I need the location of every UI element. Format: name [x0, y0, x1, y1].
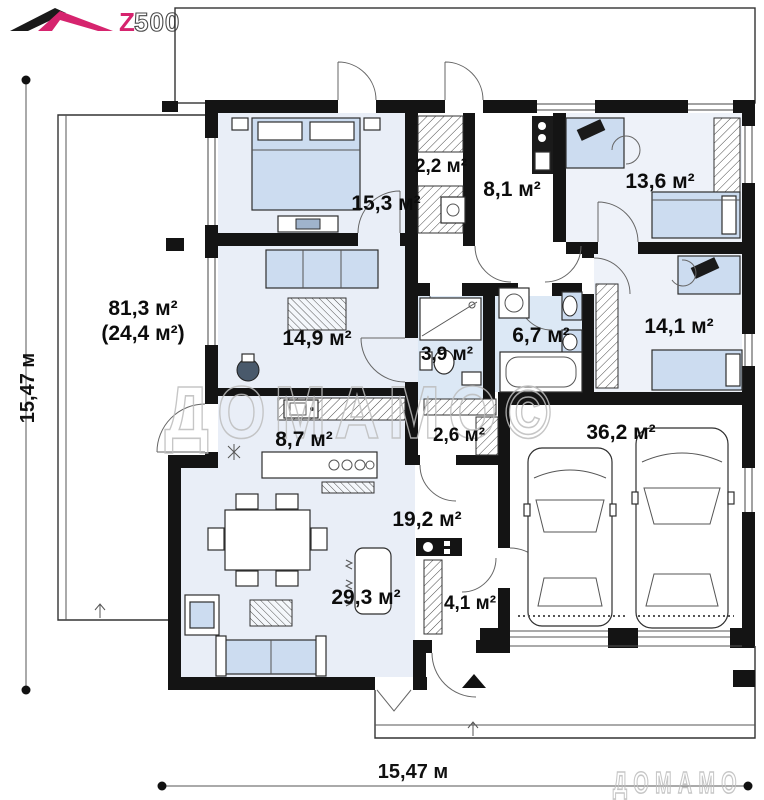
driveway-pillar — [733, 670, 755, 687]
label-wardrobe: 2,2 м² — [415, 156, 467, 177]
roof-overhang-outline — [175, 8, 755, 103]
label-closet: 2,6 м² — [433, 425, 485, 446]
bottom-dimension-label: 15,47 м — [378, 761, 448, 783]
wall-marker-top — [162, 101, 178, 112]
car-large — [632, 428, 734, 628]
label-garage: 36,2 м² — [586, 421, 655, 444]
left-dimension-label: 15,47 м — [17, 353, 39, 423]
z500-logo: Z 500 — [10, 7, 180, 37]
label-bathroom: 6,7 м² — [512, 324, 570, 347]
label-bedroom-main: 15,3 м² — [351, 192, 420, 215]
label-study: 14,9 м² — [282, 327, 351, 350]
label-boiler-room: 4,1 м² — [444, 593, 496, 614]
watermark-corner: ДОМАМО — [613, 765, 743, 800]
floor-plan-page: Z 500 15,47 м 15,47 м — [0, 0, 764, 800]
logo-text-z: Z — [119, 7, 135, 37]
car-small — [524, 448, 616, 626]
label-living-room: 29,3 м² — [331, 586, 400, 609]
label-terrace-area-secondary: (24,4 м²) — [101, 322, 184, 345]
label-hallway: 19,2 м² — [392, 508, 461, 531]
logo-text-500: 500 — [134, 7, 180, 37]
watermark-center: ДОМАМО© — [165, 371, 560, 454]
label-bedroom-right: 13,6 м² — [625, 170, 694, 193]
hall-stove-unit — [532, 116, 553, 174]
label-hall: 8,1 м² — [483, 178, 541, 201]
floor-plan-canvas: Z 500 15,47 м 15,47 м — [0, 0, 764, 800]
label-bedroom-lower: 14,1 м² — [644, 315, 713, 338]
left-dimension: 15,47 м — [17, 76, 39, 695]
label-terrace-area: 81,3 м² — [108, 297, 177, 320]
chimney-stub — [166, 238, 184, 251]
label-shower-room: 3,9 м² — [421, 344, 473, 365]
label-kitchen: 8,7 м² — [275, 428, 333, 451]
entrance-marker — [462, 674, 486, 688]
